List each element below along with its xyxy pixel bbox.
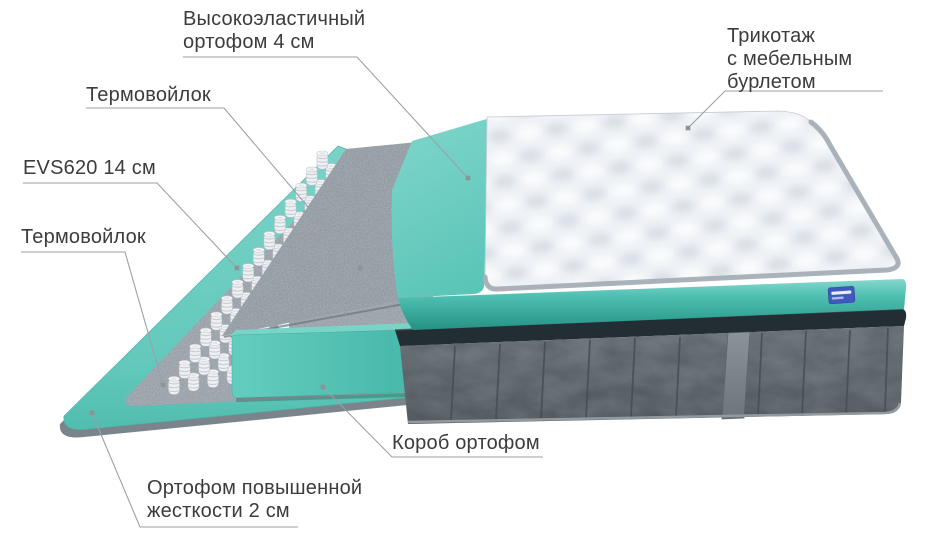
label-knit-cover-line1: Трикотаж	[727, 25, 852, 48]
brand-tag	[828, 286, 855, 304]
label-base-foam: Ортофом повышенной жесткости 2 см	[147, 477, 362, 523]
label-springs: EVS620 14 см	[23, 157, 156, 180]
label-knit-cover: Трикотаж с мебельным бурлетом	[727, 25, 852, 94]
label-foam-box: Короб ортофом	[392, 432, 540, 455]
label-base-foam-line1: Ортофом повышенной	[147, 477, 362, 500]
label-top-foam-line1: Высокоэластичный	[183, 8, 365, 31]
label-springs-line1: EVS620 14 см	[23, 157, 156, 180]
layer-knit-cover	[485, 111, 898, 289]
label-foam-box-line1: Короб ортофом	[392, 432, 540, 455]
label-base-foam-line2: жесткости 2 см	[147, 500, 362, 523]
label-top-foam-line2: ортофом 4 см	[183, 31, 365, 54]
label-felt-top-line1: Термовойлок	[86, 84, 211, 107]
label-felt-top: Термовойлок	[86, 84, 211, 107]
label-top-foam: Высокоэластичный ортофом 4 см	[183, 8, 365, 54]
mattress-layers-infographic: Высокоэластичный ортофом 4 см Термовойло…	[0, 0, 932, 541]
label-felt-bottom: Термовойлок	[21, 226, 146, 249]
label-knit-cover-line3: бурлетом	[727, 71, 852, 94]
label-knit-cover-line2: с мебельным	[727, 48, 852, 71]
label-felt-bottom-line1: Термовойлок	[21, 226, 146, 249]
